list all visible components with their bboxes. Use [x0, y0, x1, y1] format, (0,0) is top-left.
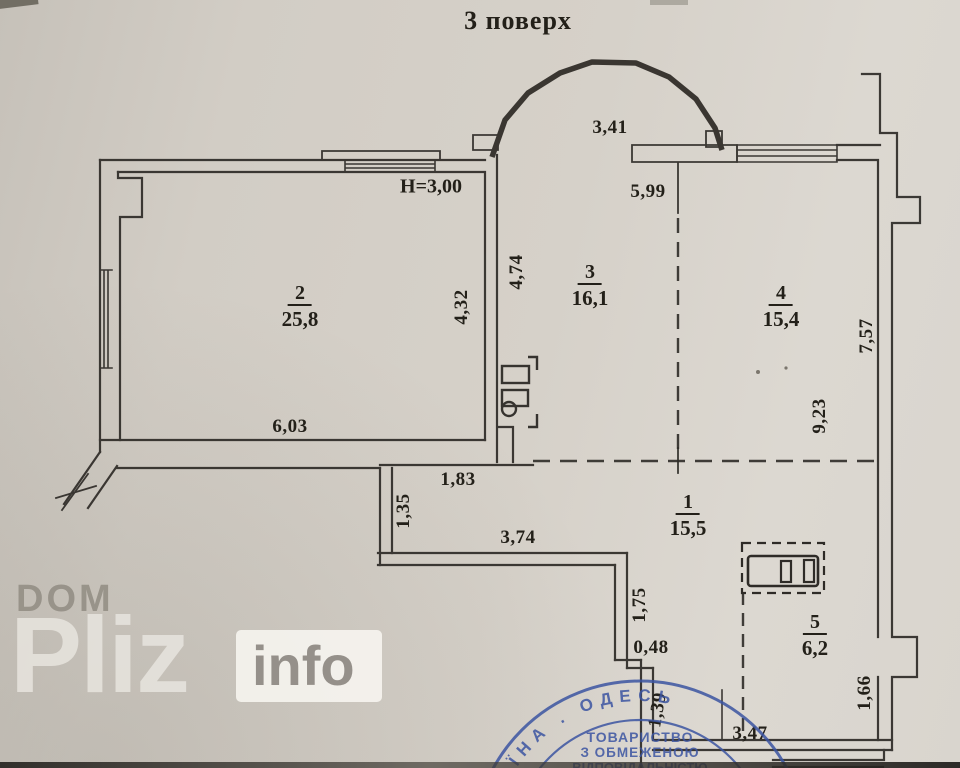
floorplan-photo: 3 поверх — [0, 0, 960, 768]
photo-edge-shadow-bottom — [0, 762, 960, 768]
company-stamp: КРАЇНА . ОДЕСЬ ТОВАРИСТВО З ОБМЕЖЕНОЮ ВІ… — [0, 0, 960, 768]
stamp-line-1: ТОВАРИСТВО — [587, 729, 694, 745]
photo-edge-shadow-top — [650, 0, 688, 5]
stamp-line-2: З ОБМЕЖЕНОЮ — [580, 745, 699, 760]
